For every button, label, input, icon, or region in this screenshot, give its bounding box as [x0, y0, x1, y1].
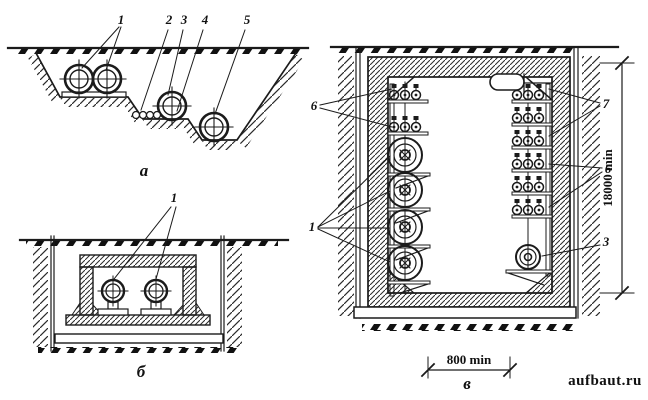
callout-label-left-6: 6 — [311, 98, 318, 113]
callout-label-2: 2 — [165, 12, 173, 27]
callout-label-1: 1 — [118, 12, 125, 27]
pipeline-installation-diagram: 1 2 3 4 5 а — [0, 0, 648, 400]
dimension-label-width: 800 min — [447, 352, 492, 367]
figure-v-ground-surface — [331, 47, 618, 53]
channel-base-slab — [66, 315, 210, 325]
bottom-strut-beam — [55, 334, 223, 343]
watermark-text: aufbaut.ru — [568, 373, 642, 389]
callout-label-right-3: 3 — [602, 234, 610, 249]
callout-label-left-1: 1 — [309, 219, 316, 234]
pipe-sill-beam — [62, 92, 126, 97]
figure-a-label: а — [140, 161, 149, 180]
dimension-label-depth: 18000 min — [600, 149, 615, 207]
road-surface-hatch — [14, 49, 302, 54]
technical-drawing-page: 1 2 3 4 5 а — [0, 0, 648, 400]
subsoil-hatch — [362, 324, 574, 331]
callout-label-4: 4 — [201, 12, 209, 27]
callout-label-3: 3 — [180, 12, 188, 27]
callout-label-5: 5 — [244, 12, 251, 27]
figure-a-ground-surface — [8, 48, 308, 54]
road-surface-hatch — [336, 48, 576, 53]
figure-v-label: в — [463, 374, 471, 393]
subsoil-hatch — [38, 347, 240, 353]
figure-b-ground-surface — [20, 240, 288, 246]
road-surface-hatch — [26, 241, 278, 246]
callout-label-1: 1 — [171, 190, 178, 205]
callout-label-right-7: 7 — [603, 96, 610, 111]
foundation-slab — [354, 307, 576, 318]
